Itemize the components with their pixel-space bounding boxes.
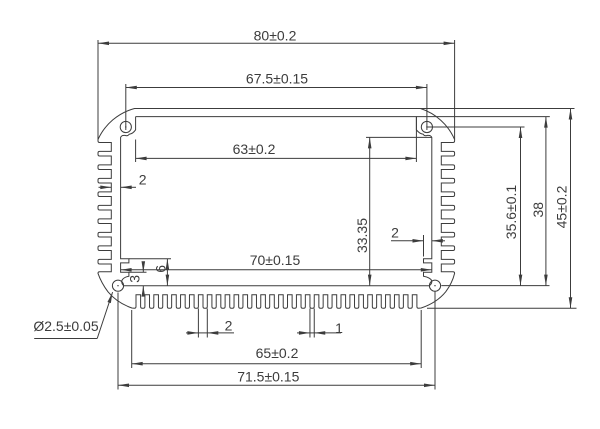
- svg-text:2: 2: [391, 225, 399, 241]
- svg-text:71.5±0.15: 71.5±0.15: [237, 369, 299, 385]
- svg-text:80±0.2: 80±0.2: [254, 28, 297, 44]
- svg-text:2: 2: [225, 318, 233, 334]
- svg-text:65±0.2: 65±0.2: [256, 345, 299, 361]
- svg-text:70±0.15: 70±0.15: [250, 252, 301, 268]
- svg-text:2: 2: [139, 171, 147, 187]
- svg-text:33.35: 33.35: [354, 218, 370, 253]
- svg-text:3: 3: [127, 275, 143, 283]
- svg-text:35.6±0.1: 35.6±0.1: [503, 185, 519, 240]
- svg-text:Ø2.5±0.05: Ø2.5±0.05: [33, 318, 98, 334]
- svg-text:45±0.2: 45±0.2: [554, 185, 570, 228]
- svg-text:63±0.2: 63±0.2: [233, 141, 276, 157]
- svg-text:6: 6: [152, 265, 168, 273]
- svg-text:1: 1: [335, 320, 343, 336]
- svg-text:67.5±0.15: 67.5±0.15: [246, 71, 308, 87]
- svg-text:38: 38: [530, 202, 546, 218]
